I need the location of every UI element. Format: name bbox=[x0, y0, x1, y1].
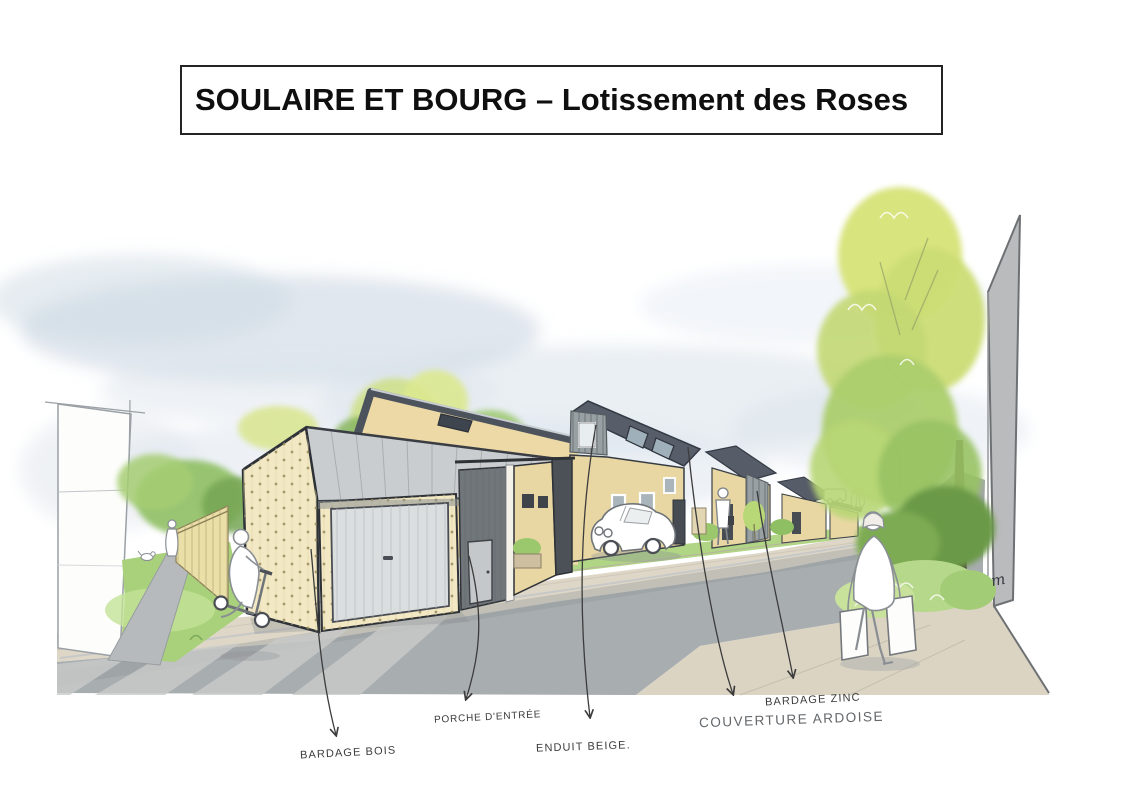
house-wall-right bbox=[514, 462, 556, 595]
shopping-bag-left bbox=[840, 608, 868, 660]
document-page: SOULAIRE ET BOURG – Lotissement des Rose… bbox=[0, 0, 1131, 800]
garage-door-handle bbox=[383, 556, 393, 560]
scooter-rear-wheel bbox=[215, 597, 228, 610]
scooter-person-head bbox=[234, 530, 249, 545]
facade-window-small bbox=[664, 478, 675, 493]
mailbox-pillar bbox=[692, 508, 706, 534]
artist-signature: m bbox=[990, 570, 1007, 590]
scooter-front-wheel bbox=[255, 613, 269, 627]
planter-box bbox=[514, 554, 541, 568]
architectural-illustration bbox=[0, 0, 1131, 800]
car-wheel-rear bbox=[646, 539, 660, 553]
briefcase bbox=[728, 516, 734, 525]
car-headlight-2 bbox=[604, 529, 612, 537]
porch-column bbox=[506, 465, 514, 602]
car-wheel-front bbox=[604, 541, 618, 555]
dark-post bbox=[552, 458, 572, 575]
car-headlight-1 bbox=[595, 527, 603, 535]
